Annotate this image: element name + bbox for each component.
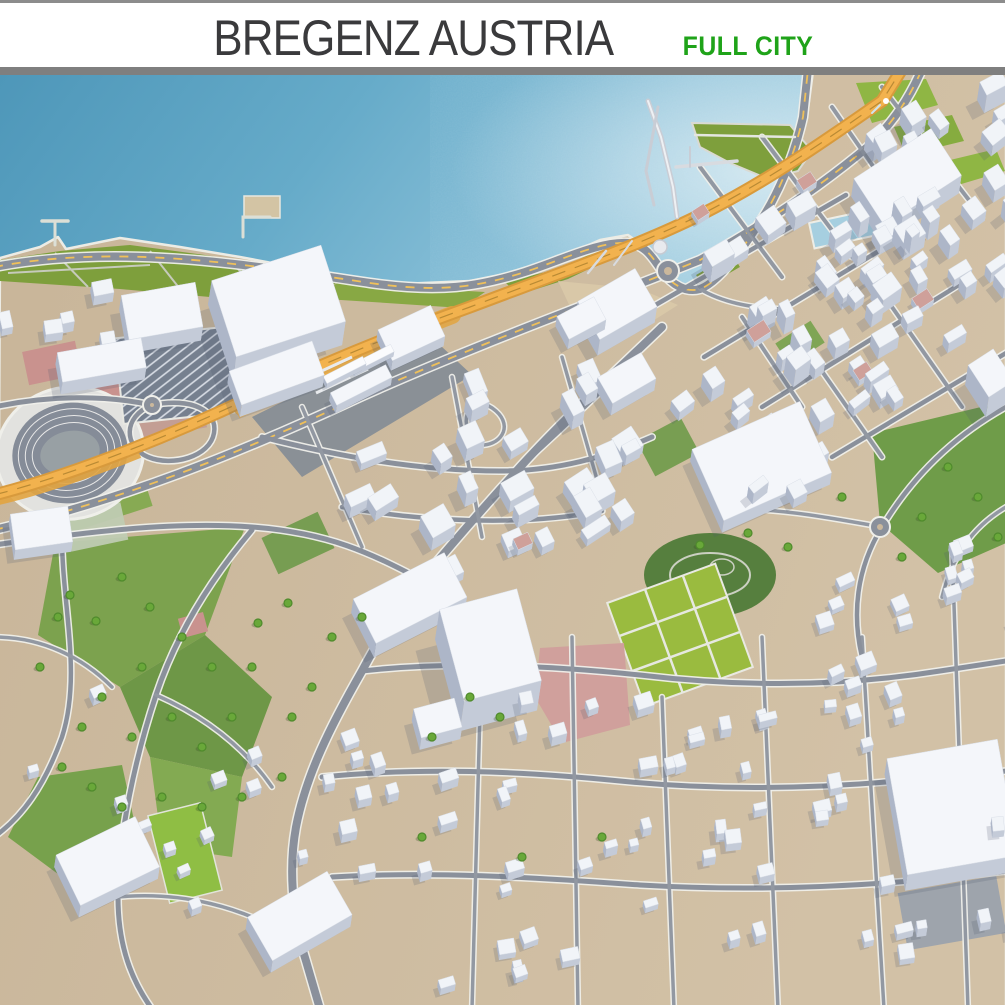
roundabout-island (150, 403, 154, 407)
building (898, 943, 915, 960)
header: BREGENZ AUSTRIA FULL CITY (0, 3, 1005, 67)
tree (158, 793, 166, 801)
tree (918, 513, 926, 521)
building (916, 920, 927, 930)
tree (598, 833, 606, 841)
tree (418, 833, 426, 841)
terrain-patch (244, 196, 280, 218)
tree (98, 693, 106, 701)
tree (118, 573, 126, 581)
tree (138, 663, 146, 671)
tree (994, 533, 1002, 541)
tree (58, 763, 66, 771)
roundabout-island (664, 267, 672, 275)
tree (784, 543, 792, 551)
tree (466, 693, 474, 701)
header-divider-bar (0, 67, 1005, 75)
tree (208, 663, 216, 671)
tree (168, 713, 176, 721)
boat (883, 98, 889, 104)
map-container (0, 75, 1005, 1005)
tree (944, 463, 952, 471)
building (497, 938, 516, 955)
tree (198, 743, 206, 751)
tree (66, 591, 74, 599)
landmark-building (10, 506, 72, 550)
tree (518, 853, 526, 861)
tree (146, 603, 154, 611)
tree (36, 663, 44, 671)
tree (128, 733, 136, 741)
page-subtitle: FULL CITY (682, 33, 813, 60)
product-render-page: BREGENZ AUSTRIA FULL CITY (0, 0, 1005, 1005)
tree (496, 713, 504, 721)
tree (288, 713, 296, 721)
city-map-render (0, 75, 1005, 1005)
building (519, 691, 534, 706)
roundabout-island (877, 524, 883, 530)
tree (92, 617, 100, 625)
tree (308, 683, 316, 691)
tree (238, 793, 246, 801)
tree (228, 713, 236, 721)
building (719, 715, 732, 730)
tree (974, 493, 982, 501)
building (100, 331, 116, 345)
tree (898, 553, 906, 561)
building (44, 319, 63, 335)
tree (118, 803, 126, 811)
landmark-building (887, 739, 1005, 875)
tree (88, 783, 96, 791)
page-title: BREGENZ AUSTRIA (214, 13, 614, 63)
storage-tank (653, 240, 667, 254)
tree (696, 541, 704, 549)
tree (278, 773, 286, 781)
building (815, 810, 829, 821)
tree (78, 723, 86, 731)
tree (284, 599, 292, 607)
building (992, 816, 1005, 831)
tree (744, 529, 752, 537)
building (725, 828, 742, 844)
tree (198, 803, 206, 811)
building (60, 311, 74, 324)
tree (248, 663, 256, 671)
tree (428, 733, 436, 741)
tree (328, 633, 336, 641)
building (323, 773, 335, 785)
tree (838, 493, 846, 501)
tree (178, 633, 186, 641)
tree (358, 613, 366, 621)
tree (254, 619, 262, 627)
tree (54, 613, 62, 621)
building (825, 699, 837, 708)
